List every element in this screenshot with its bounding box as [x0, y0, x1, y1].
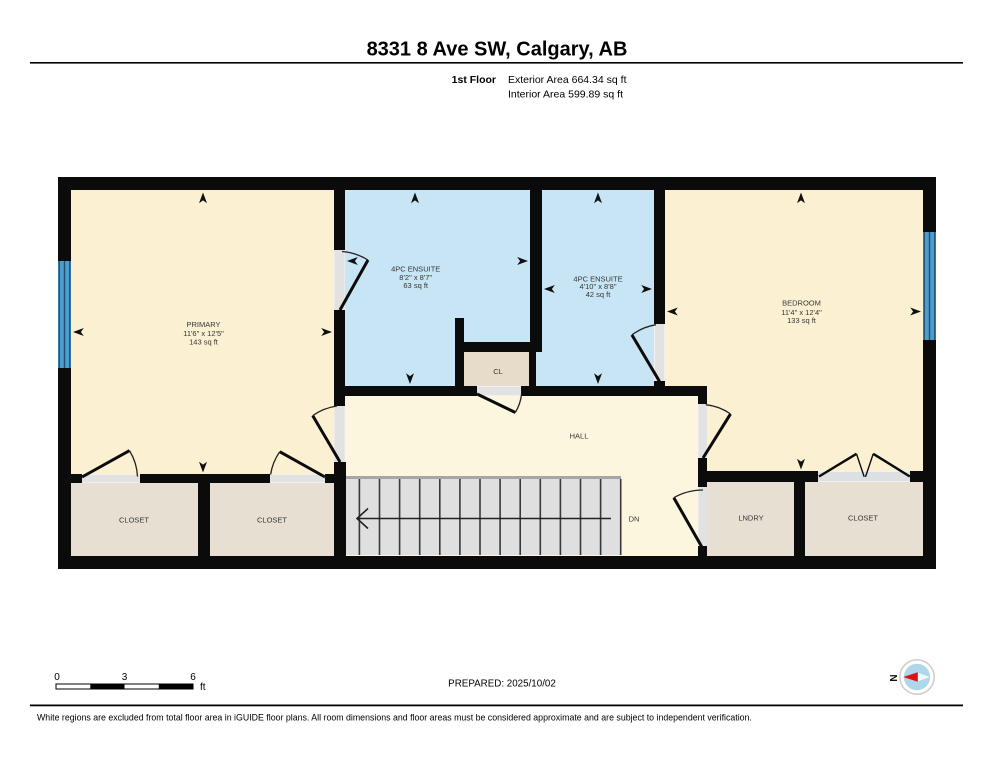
- svg-text:42 sq ft: 42 sq ft: [586, 290, 612, 299]
- svg-text:BEDROOM: BEDROOM: [782, 299, 821, 308]
- svg-text:PREPARED: 2025/10/02: PREPARED: 2025/10/02: [448, 679, 556, 690]
- svg-text:8331 8 Ave SW, Calgary, AB: 8331 8 Ave SW, Calgary, AB: [367, 39, 628, 61]
- svg-text:DN: DN: [629, 515, 640, 524]
- svg-text:1st Floor: 1st Floor: [452, 74, 496, 86]
- svg-text:CLOSET: CLOSET: [119, 516, 149, 525]
- svg-text:0: 0: [54, 672, 60, 683]
- svg-text:White regions are excluded fro: White regions are excluded from total fl…: [37, 713, 752, 723]
- svg-text:Interior Area 599.89 sq ft: Interior Area 599.89 sq ft: [508, 88, 623, 100]
- svg-text:N: N: [889, 674, 900, 681]
- svg-text:6: 6: [190, 672, 196, 683]
- svg-text:3: 3: [122, 672, 128, 683]
- svg-text:PRIMARY: PRIMARY: [186, 320, 220, 329]
- svg-text:133 sq ft: 133 sq ft: [787, 316, 817, 325]
- svg-text:CL: CL: [493, 367, 503, 376]
- svg-text:ft: ft: [200, 682, 206, 693]
- svg-text:Exterior Area 664.34 sq ft: Exterior Area 664.34 sq ft: [508, 74, 627, 86]
- svg-text:LNDRY: LNDRY: [738, 514, 763, 523]
- svg-text:CLOSET: CLOSET: [848, 514, 878, 523]
- svg-text:63 sq ft: 63 sq ft: [403, 281, 429, 290]
- svg-text:HALL: HALL: [570, 432, 589, 441]
- svg-text:CLOSET: CLOSET: [257, 516, 287, 525]
- svg-text:143 sq ft: 143 sq ft: [189, 338, 219, 347]
